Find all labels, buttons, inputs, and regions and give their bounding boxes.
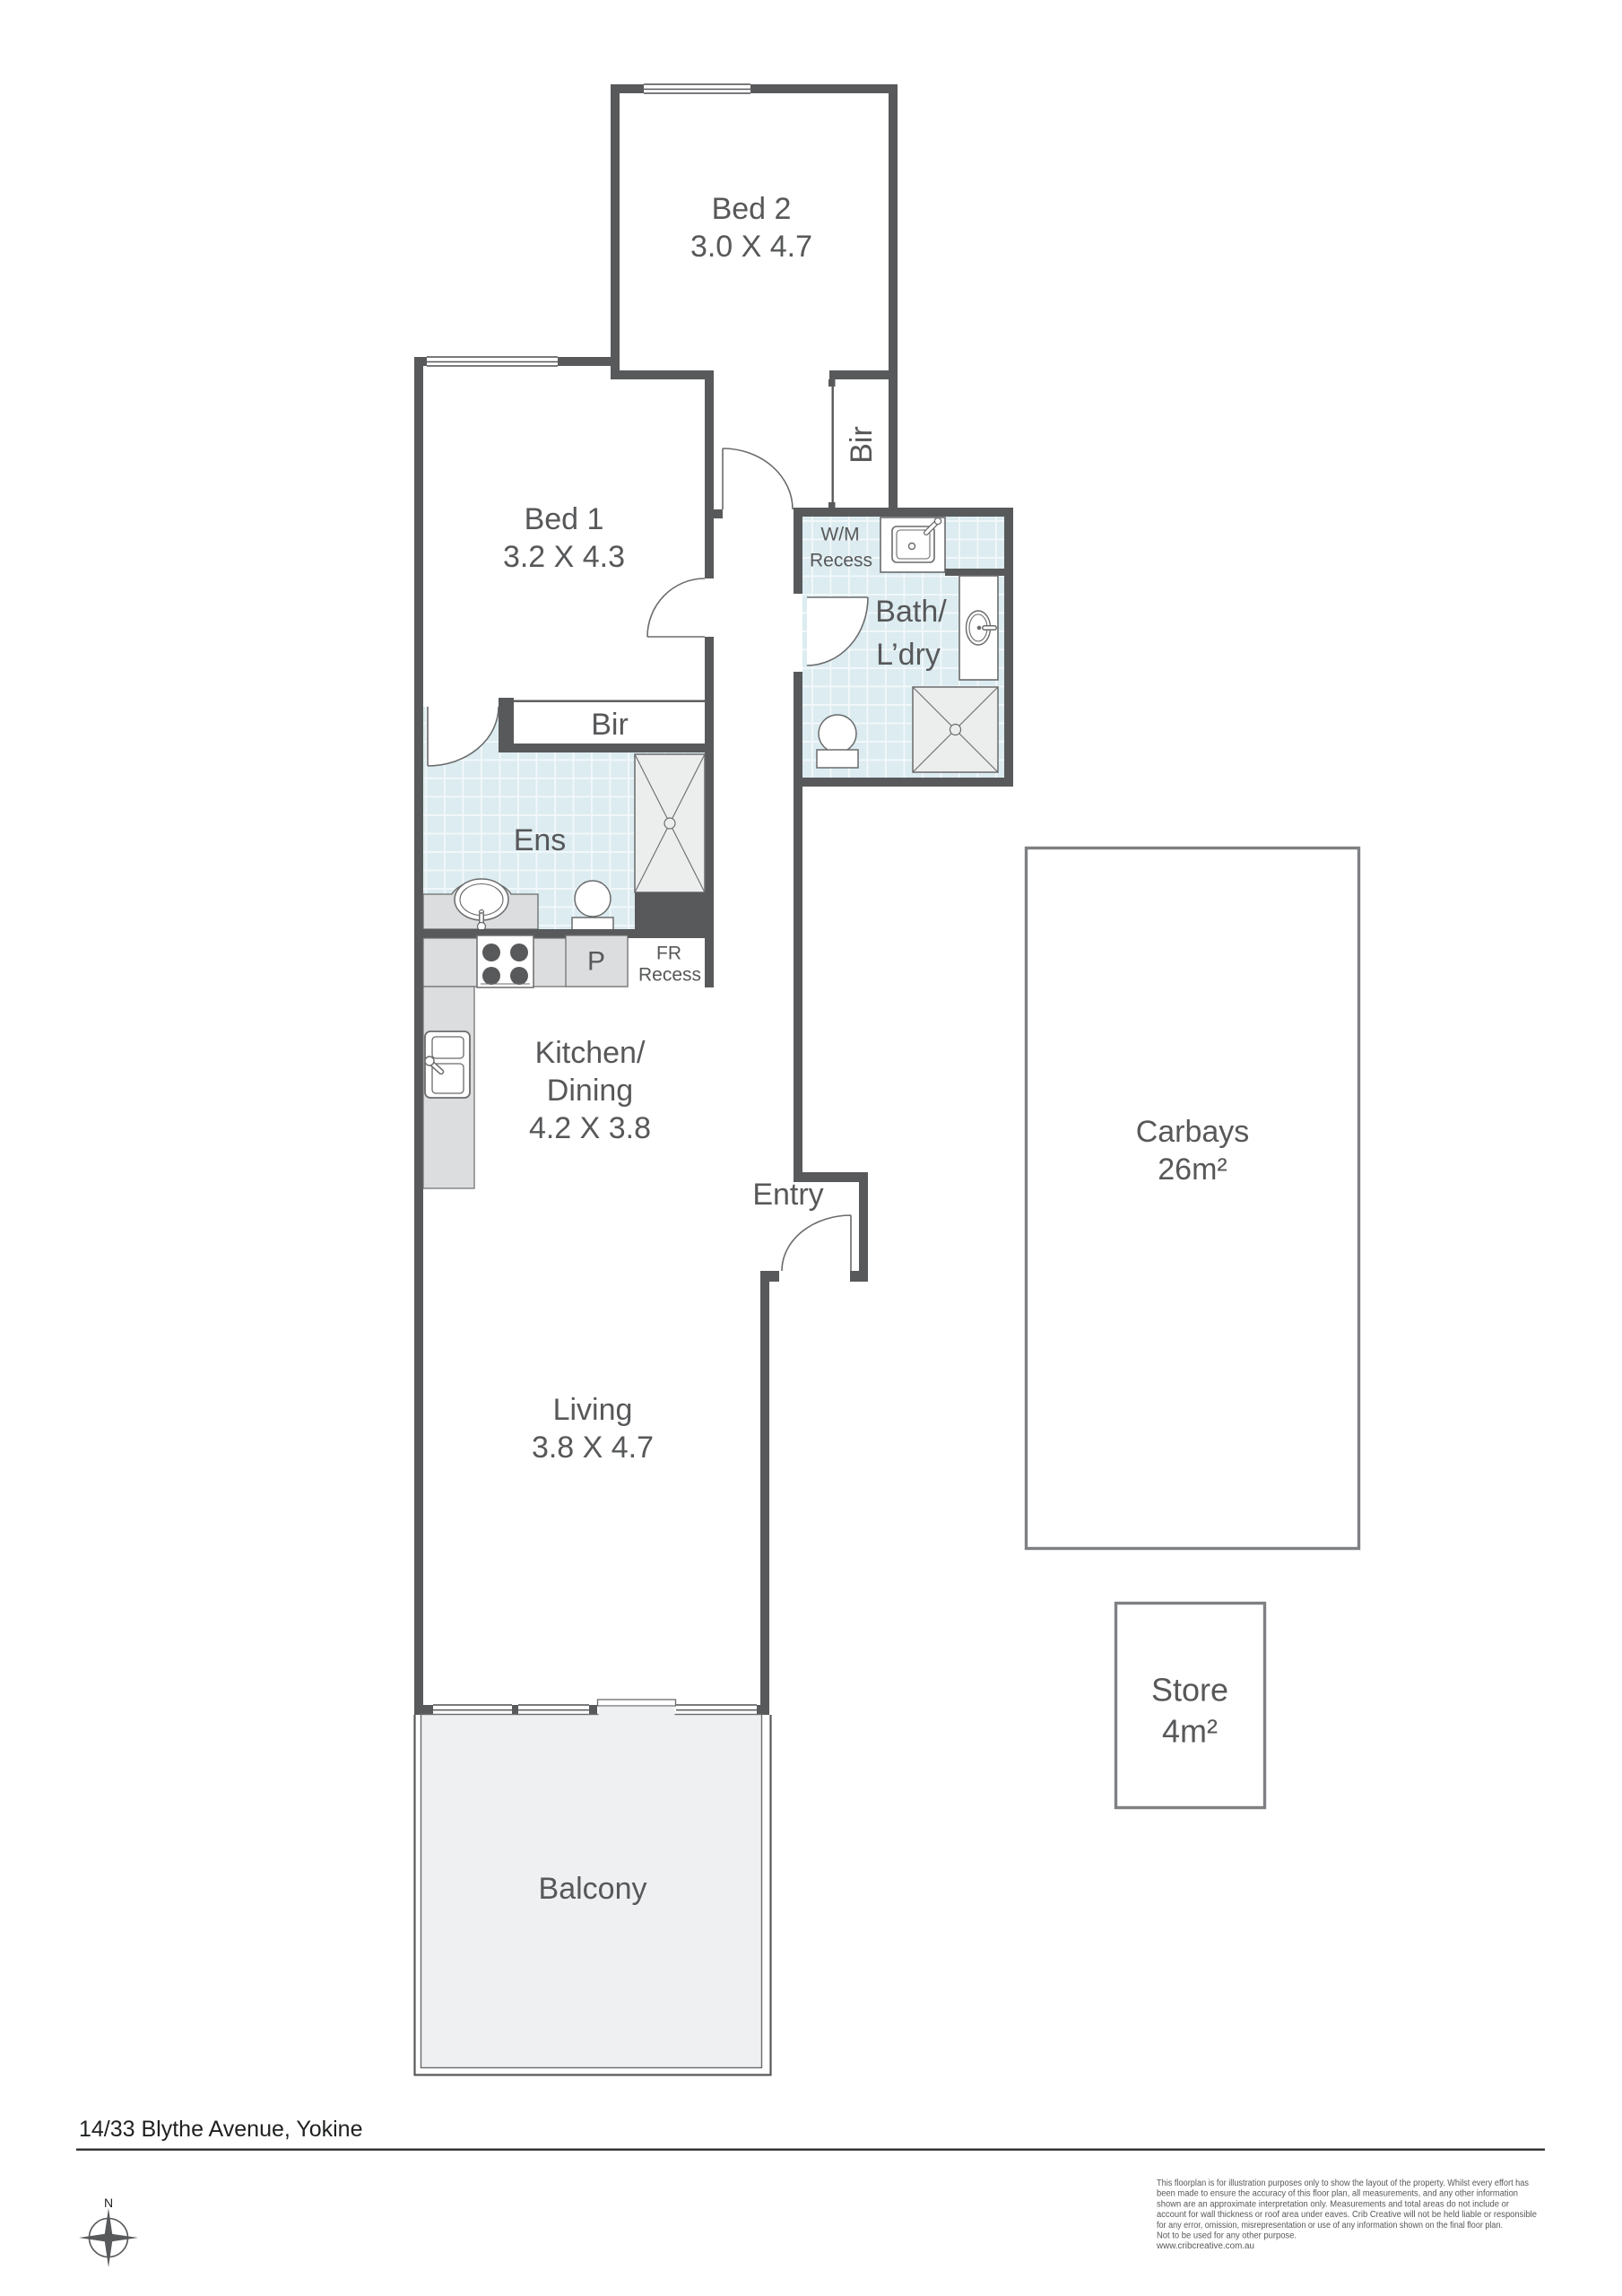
svg-text:www.cribcreative.com.au: www.cribcreative.com.au — [1156, 2241, 1254, 2251]
svg-text:This floorplan is for illustra: This floorplan is for illustration purpo… — [1157, 2179, 1529, 2188]
svg-text:W/M: W/M — [820, 525, 859, 545]
svg-text:for any error, omission, misre: for any error, omission, misrepresentati… — [1157, 2221, 1503, 2231]
svg-text:Balcony: Balcony — [539, 1872, 647, 1906]
svg-text:L’dry: L’dry — [876, 638, 941, 672]
svg-text:been made to ensure the accura: been made to ensure the accuracy of this… — [1157, 2189, 1518, 2199]
svg-text:14/33 Blythe Avenue, Yokine: 14/33 Blythe Avenue, Yokine — [79, 2117, 362, 2142]
svg-text:Entry: Entry — [752, 1178, 823, 1212]
svg-text:Ens: Ens — [514, 823, 567, 857]
svg-text:Store: Store — [1151, 1672, 1228, 1709]
svg-text:Bir: Bir — [591, 708, 629, 742]
svg-text:4.2 X 3.8: 4.2 X 3.8 — [529, 1111, 651, 1145]
svg-text:shown are an approximate inter: shown are an approximate interpretation … — [1157, 2199, 1510, 2209]
svg-text:26m²: 26m² — [1158, 1152, 1227, 1187]
svg-text:N: N — [104, 2196, 113, 2210]
svg-text:Bed 2: Bed 2 — [712, 192, 792, 226]
svg-text:Kitchen/: Kitchen/ — [535, 1036, 646, 1070]
svg-text:FR: FR — [656, 944, 681, 964]
svg-text:Recess: Recess — [810, 551, 872, 571]
svg-text:P: P — [587, 947, 605, 977]
svg-text:3.2 X 4.3: 3.2 X 4.3 — [503, 540, 625, 574]
svg-text:3.8 X 4.7: 3.8 X 4.7 — [532, 1431, 654, 1465]
svg-text:Not to be used for any other p: Not to be used for any other purpose. — [1157, 2231, 1297, 2241]
svg-text:3.0 X 4.7: 3.0 X 4.7 — [690, 230, 812, 264]
svg-text:Bed 1: Bed 1 — [525, 502, 604, 536]
svg-text:Recess: Recess — [638, 965, 701, 986]
svg-text:Bath/: Bath/ — [875, 595, 947, 629]
svg-text:Carbays: Carbays — [1136, 1115, 1250, 1149]
svg-text:account for wall thickness or: account for wall thickness or roof area … — [1157, 2210, 1537, 2220]
svg-text:Bir: Bir — [845, 426, 879, 464]
svg-text:4m²: 4m² — [1162, 1713, 1218, 1750]
svg-text:Dining: Dining — [547, 1074, 633, 1108]
svg-text:Living: Living — [553, 1393, 633, 1427]
